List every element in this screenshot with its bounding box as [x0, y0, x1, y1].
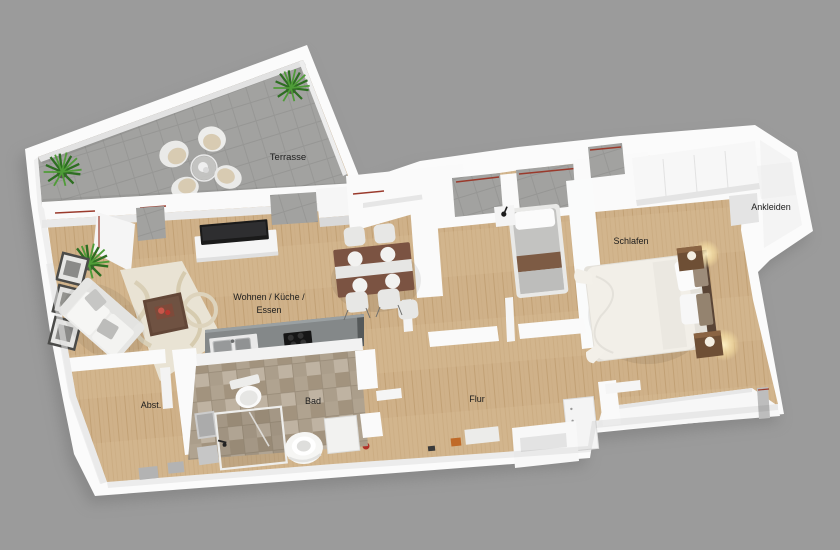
svg-text:Schlafen: Schlafen — [613, 236, 648, 246]
svg-text:Abst.: Abst. — [141, 400, 162, 410]
svg-text:Wohnen / Küche /: Wohnen / Küche / — [233, 292, 305, 302]
svg-text:Flur: Flur — [469, 394, 485, 404]
svg-text:Terrasse: Terrasse — [270, 152, 306, 163]
svg-text:Ankleiden: Ankleiden — [751, 202, 791, 212]
svg-text:Essen: Essen — [256, 305, 281, 315]
svg-text:Bad: Bad — [305, 396, 321, 406]
